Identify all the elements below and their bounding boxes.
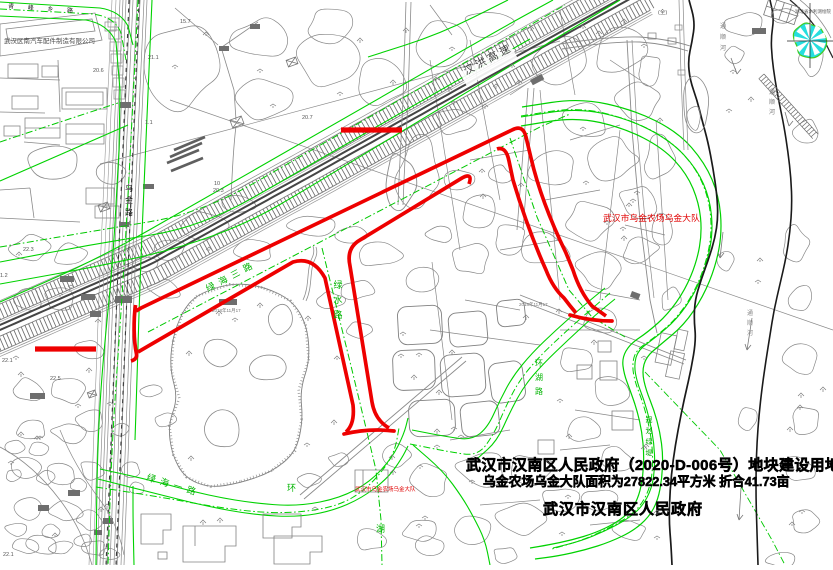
svg-text:顺: 顺 xyxy=(747,320,753,327)
svg-text:1.1: 1.1 xyxy=(145,120,153,126)
svg-text:2018年11月17: 2018年11月17 xyxy=(519,301,548,308)
svg-text:环: 环 xyxy=(535,359,543,368)
svg-text:路: 路 xyxy=(333,309,342,320)
svg-text:乌金农场乌金大队面积为27822.34平方米 折合41.73: 乌金农场乌金大队面积为27822.34平方米 折合41.73亩 xyxy=(483,474,790,489)
svg-text:武汉市乌金农场乌金大队: 武汉市乌金农场乌金大队 xyxy=(603,212,700,223)
svg-text:通: 通 xyxy=(769,88,775,96)
svg-text:路: 路 xyxy=(125,207,133,217)
svg-text:环: 环 xyxy=(287,483,296,493)
svg-text:绿: 绿 xyxy=(333,279,342,290)
svg-text:武汉区南汽车配件制造有限公司: 武汉区南汽车配件制造有限公司 xyxy=(4,36,95,45)
svg-text:22.1: 22.1 xyxy=(3,552,14,558)
svg-text:(全): (全) xyxy=(658,8,667,16)
svg-text:22.3: 22.3 xyxy=(23,247,34,253)
svg-text:湖: 湖 xyxy=(376,524,385,534)
svg-text:1.2: 1.2 xyxy=(0,273,8,279)
svg-text:河: 河 xyxy=(769,108,775,116)
svg-text:顺: 顺 xyxy=(720,34,726,41)
svg-text:22.5: 22.5 xyxy=(50,376,61,382)
svg-text:河: 河 xyxy=(720,44,726,52)
svg-text:2018年11月17: 2018年11月17 xyxy=(212,307,241,314)
svg-text:15.7: 15.7 xyxy=(180,19,191,25)
svg-text:10: 10 xyxy=(214,181,220,187)
svg-text:20.3: 20.3 xyxy=(213,188,224,194)
svg-text:顺: 顺 xyxy=(769,99,775,106)
svg-text:金: 金 xyxy=(125,195,133,205)
svg-text:堤: 堤 xyxy=(646,448,653,457)
svg-text:武汉市汉南区人民政府: 武汉市汉南区人民政府 xyxy=(543,500,703,518)
svg-text:乌: 乌 xyxy=(125,183,133,193)
svg-text:20.7: 20.7 xyxy=(302,115,313,121)
svg-text:20.6: 20.6 xyxy=(93,68,104,74)
svg-text:湖: 湖 xyxy=(535,373,543,382)
svg-text:划: 划 xyxy=(646,426,653,435)
svg-text:河: 河 xyxy=(747,329,753,337)
svg-text:湖北省水利测绘院: 湖北省水利测绘院 xyxy=(795,8,831,15)
svg-text:武汉市汉南区人民政府（2020-D-006号）地块建设用地拟: 武汉市汉南区人民政府（2020-D-006号）地块建设用地拟征收范围图 xyxy=(466,456,833,474)
svg-text:通: 通 xyxy=(747,309,753,317)
svg-text:路: 路 xyxy=(535,386,543,396)
svg-text:22.1: 22.1 xyxy=(2,358,13,364)
svg-text:水: 水 xyxy=(333,294,342,305)
svg-text:通: 通 xyxy=(720,22,726,30)
svg-text:21.1: 21.1 xyxy=(148,55,159,61)
svg-text:规: 规 xyxy=(646,415,653,424)
